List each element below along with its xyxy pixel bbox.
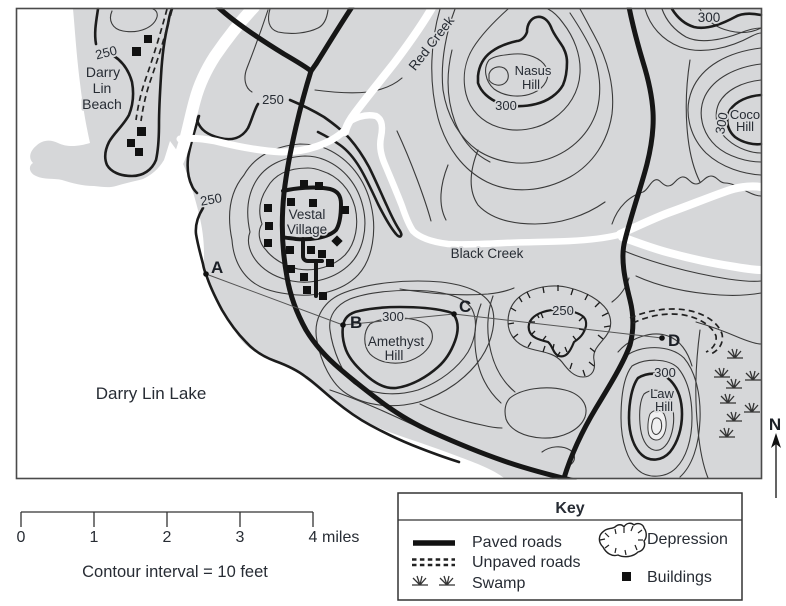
svg-text:Nasus: Nasus [515, 63, 552, 78]
svg-text:N: N [769, 415, 781, 434]
svg-text:D: D [668, 331, 680, 350]
svg-text:Hill: Hill [385, 348, 404, 363]
svg-text:Vestal: Vestal [289, 207, 326, 222]
svg-text:4: 4 [309, 529, 318, 546]
svg-text:1: 1 [90, 529, 99, 546]
svg-text:Hill: Hill [522, 77, 540, 92]
svg-text:Swamp: Swamp [472, 575, 525, 592]
svg-text:Contour interval = 10 feet: Contour interval = 10 feet [82, 563, 268, 581]
svg-text:Darry Lin Lake: Darry Lin Lake [96, 384, 207, 403]
svg-text:Depression: Depression [647, 531, 728, 548]
svg-text:Black Creek: Black Creek [451, 246, 524, 261]
svg-text:A: A [211, 258, 223, 277]
svg-text:300: 300 [654, 365, 676, 380]
svg-text:Hill: Hill [736, 119, 754, 134]
svg-text:300: 300 [698, 10, 721, 25]
svg-text:0: 0 [17, 529, 26, 546]
svg-text:3: 3 [236, 529, 245, 546]
svg-text:300: 300 [495, 98, 517, 113]
svg-text:Darry: Darry [86, 64, 120, 80]
svg-text:Lin: Lin [93, 80, 112, 96]
svg-text:250: 250 [552, 303, 574, 318]
svg-text:250: 250 [262, 92, 284, 107]
svg-text:300: 300 [382, 309, 404, 324]
svg-text:Unpaved roads: Unpaved roads [472, 554, 581, 571]
svg-text:Paved roads: Paved roads [472, 534, 562, 551]
svg-text:miles: miles [322, 529, 359, 546]
svg-text:C: C [459, 297, 471, 316]
svg-text:Key: Key [555, 500, 584, 517]
svg-text:Village: Village [287, 222, 327, 237]
svg-text:Hill: Hill [655, 399, 673, 414]
svg-text:B: B [350, 313, 362, 332]
svg-text:Beach: Beach [82, 96, 122, 112]
svg-text:Amethyst: Amethyst [368, 334, 425, 349]
svg-text:2: 2 [163, 529, 172, 546]
svg-text:Buildings: Buildings [647, 569, 712, 586]
